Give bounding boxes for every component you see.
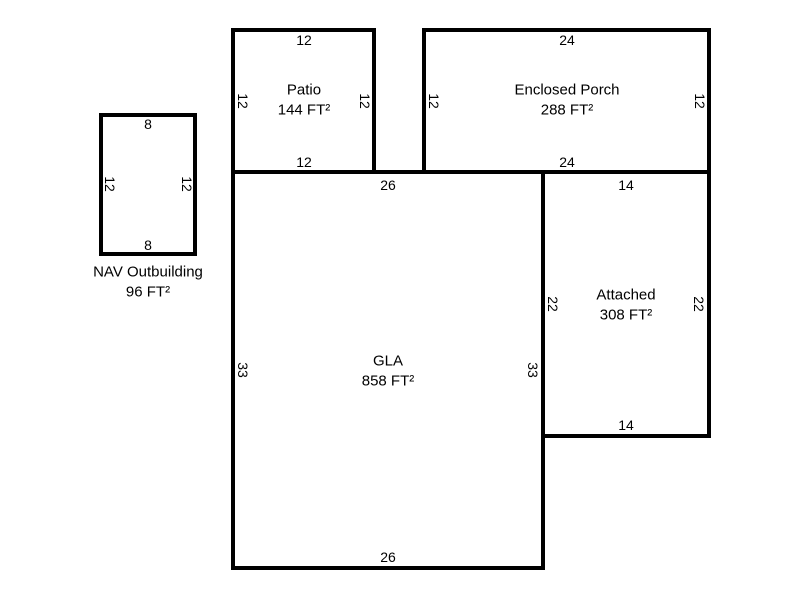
room-name-attached: Attached bbox=[596, 288, 655, 303]
dimension-label-patio-right: 12 bbox=[358, 93, 372, 109]
dimension-label-patio-left: 12 bbox=[236, 93, 250, 109]
dimension-label-attached-bottom: 14 bbox=[618, 418, 634, 432]
dimension-label-gla-left: 33 bbox=[236, 362, 250, 378]
dimension-label-nav-top: 8 bbox=[144, 117, 152, 131]
dimension-label-attached-right: 22 bbox=[692, 296, 706, 312]
dimension-label-nav-right: 12 bbox=[180, 176, 194, 192]
room-area-patio: 144 FT² bbox=[278, 103, 331, 118]
dimension-label-enclosed-porch-left: 12 bbox=[427, 93, 441, 109]
room-name-enclosed-porch: Enclosed Porch bbox=[514, 83, 619, 98]
dimension-label-nav-left: 12 bbox=[103, 176, 117, 192]
dimension-label-attached-left: 22 bbox=[546, 296, 560, 312]
dimension-label-enclosed-porch-bottom: 24 bbox=[559, 155, 575, 169]
room-area-nav-outbuilding: 96 FT² bbox=[126, 285, 170, 300]
dimension-label-gla-top: 26 bbox=[380, 178, 396, 192]
room-outline-attached bbox=[541, 170, 711, 438]
room-name-patio: Patio bbox=[287, 83, 321, 98]
dimension-label-gla-bottom: 26 bbox=[380, 550, 396, 564]
room-area-enclosed-porch: 288 FT² bbox=[541, 103, 594, 118]
room-name-nav-outbuilding: NAV Outbuilding bbox=[93, 265, 203, 280]
dimension-label-gla-right: 33 bbox=[526, 362, 540, 378]
room-outline-gla bbox=[231, 170, 545, 570]
room-name-gla: GLA bbox=[373, 354, 403, 369]
floorplan-canvas: 8 8 12 12 NAV Outbuilding 96 FT² 12 12 1… bbox=[0, 0, 800, 600]
dimension-label-patio-top: 12 bbox=[296, 33, 312, 47]
dimension-label-enclosed-porch-top: 24 bbox=[559, 33, 575, 47]
room-area-attached: 308 FT² bbox=[600, 308, 653, 323]
dimension-label-enclosed-porch-right: 12 bbox=[693, 93, 707, 109]
room-area-gla: 858 FT² bbox=[362, 374, 415, 389]
dimension-label-nav-bottom: 8 bbox=[144, 238, 152, 252]
dimension-label-attached-top: 14 bbox=[618, 178, 634, 192]
dimension-label-patio-bottom: 12 bbox=[296, 155, 312, 169]
